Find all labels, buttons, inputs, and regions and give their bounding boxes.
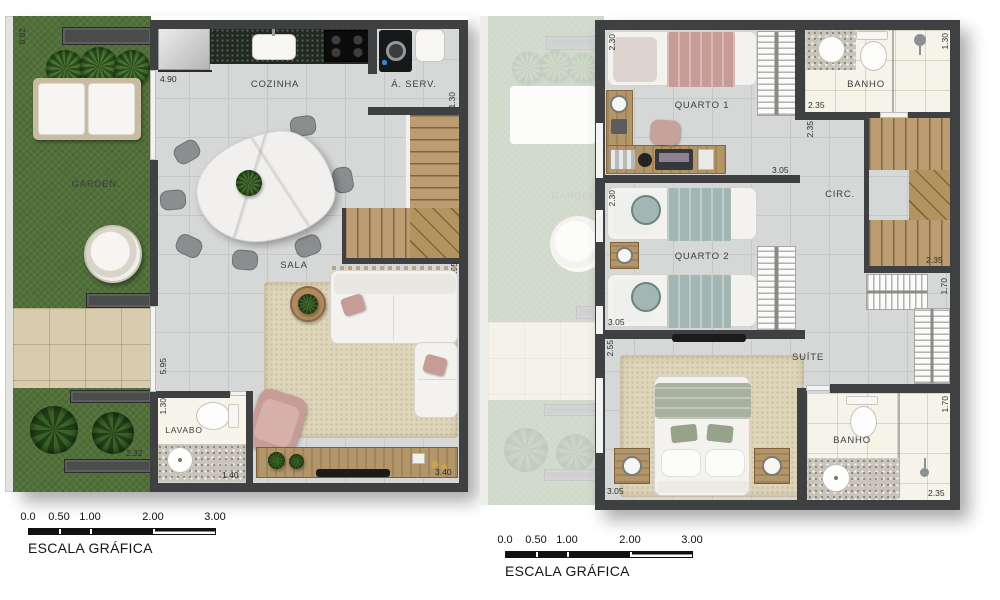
outdoor-sofa-cushion <box>88 83 135 135</box>
banho2-counter <box>807 458 899 500</box>
dim-banho2-width: 2.35 <box>928 489 945 498</box>
books-icon <box>610 149 636 170</box>
scale-bar <box>505 551 693 558</box>
stairs-side-wall <box>342 208 346 264</box>
scale-segment <box>632 552 692 557</box>
wall-left-segment <box>150 392 158 492</box>
dining-chair <box>231 249 259 271</box>
wall-bottom <box>150 483 468 492</box>
washer-drum <box>386 41 406 61</box>
dim-sala-width: 3.40 <box>435 468 452 477</box>
dim-sala-height-left: 5.95 <box>159 358 168 375</box>
scale-segment <box>506 552 536 557</box>
desk-decor <box>698 149 714 170</box>
toilet-icon <box>850 406 877 438</box>
wall-top <box>595 20 960 30</box>
scale-tick: 3.00 <box>200 511 230 523</box>
desk-chair <box>649 119 681 146</box>
closet-rack-top <box>866 274 928 310</box>
wall-right <box>950 20 960 510</box>
washer-light <box>382 60 387 65</box>
sideboard-plant-icon <box>289 454 304 469</box>
room-label-circ: CIRC. <box>815 190 865 200</box>
window <box>596 210 603 242</box>
dim-quarto1-height: 2.30 <box>608 34 617 51</box>
shower-stem <box>924 458 926 468</box>
stairs-flight <box>410 115 459 208</box>
garden-planter-lower <box>70 390 152 403</box>
sink-drain <box>178 458 182 462</box>
dim-garden-height: 8.82 <box>18 28 27 45</box>
sofa-cushion-seam <box>393 295 394 341</box>
scale-segment <box>155 529 215 534</box>
stairs2-winder <box>909 170 950 220</box>
stairs-bottom-wall <box>342 258 459 264</box>
scale-tick: 0.50 <box>521 534 551 546</box>
bed-blanket <box>667 188 731 241</box>
outdoor-sofa-cushion <box>38 83 85 135</box>
wall-below-quarto1 <box>595 175 800 183</box>
dim-quarto1-width: 3.05 <box>772 166 789 175</box>
dining-chair <box>159 189 187 211</box>
room-label-cozinha: COZINHA <box>244 80 306 90</box>
toilet-tank <box>856 31 888 40</box>
garden-nest-chair <box>84 225 142 283</box>
bush-plant-icon <box>30 406 78 454</box>
clock-icon <box>622 456 642 476</box>
sink-drain <box>834 476 838 480</box>
garden-door <box>150 70 156 160</box>
dim-garden-bottom: 2.32 <box>126 449 143 458</box>
scale-segment <box>538 552 567 557</box>
stairs2-flight-top <box>869 118 950 170</box>
ghost-garden: GARDEN. <box>488 16 604 505</box>
coffee-table-plant-icon <box>298 294 318 314</box>
garden-planter-top <box>62 27 152 45</box>
dim-suite-height: 2.55 <box>606 340 615 357</box>
bed-round-pillow <box>631 195 661 225</box>
scale-caption: ESCALA GRÁFICA <box>505 563 630 579</box>
cooktop-icon <box>324 30 370 62</box>
wardrobe-quarto2 <box>757 246 796 331</box>
bed-blanket <box>667 32 735 87</box>
wardrobe-quarto1 <box>757 31 796 116</box>
shower-head-icon <box>914 34 926 46</box>
window <box>596 306 603 334</box>
dim-banho2-height: 1.70 <box>941 396 950 413</box>
sideboard-decor <box>412 453 425 464</box>
toilet-tank <box>846 396 878 405</box>
room-label-quarto1: QUARTO 1 <box>660 101 744 111</box>
washing-machine-icon <box>379 30 412 72</box>
room-label-banho1: BANHO <box>836 80 896 90</box>
garden-planter-bottom <box>64 459 152 473</box>
window <box>596 378 603 453</box>
garden-planter-mid <box>86 293 152 308</box>
garden-patio <box>13 308 151 388</box>
dim-quarto2-height: 2.30 <box>608 190 617 207</box>
computer-screen <box>659 153 689 162</box>
banho2-wall-top <box>830 384 960 393</box>
lavabo-wall-right <box>246 391 253 485</box>
dim-lavabo-width: 1.40 <box>222 471 239 480</box>
tv-icon <box>672 334 746 342</box>
bed-blanket <box>655 383 751 419</box>
stairs-top-wall <box>368 107 459 115</box>
sink-icon <box>818 36 845 63</box>
scale-caption: ESCALA GRÁFICA <box>28 540 153 556</box>
scale-tick: 2.00 <box>138 511 168 523</box>
sofa-cushion-seam <box>418 379 456 380</box>
scale-tick: 0.0 <box>490 534 520 546</box>
scale-tick: 0.50 <box>44 511 74 523</box>
kitchen-counter <box>158 28 210 70</box>
scale-tick: 3.00 <box>677 534 707 546</box>
tv-icon <box>316 469 390 477</box>
table-plant-icon <box>236 170 262 196</box>
closet-rack-right <box>914 308 950 384</box>
desk-decor-box <box>611 119 627 134</box>
bed-headboard <box>657 481 749 493</box>
kitchen-sink <box>252 34 296 60</box>
bed-round-pillow <box>631 282 661 312</box>
service-divider-wall <box>368 28 377 74</box>
room-label-aserv: Á. SERV. <box>386 80 442 90</box>
stairs-flight <box>345 208 410 260</box>
stairs-winder <box>410 208 459 260</box>
dim-closet-height: 1.70 <box>940 278 949 295</box>
bed-pillow <box>661 449 701 477</box>
clock-icon <box>762 456 782 476</box>
desk-lamp-icon <box>638 153 652 167</box>
bed-pillow <box>705 449 745 477</box>
banho1-wall-left <box>795 20 805 120</box>
scale-segment <box>61 529 90 534</box>
bed-accent-pillow <box>706 424 734 444</box>
bed-blanket <box>667 275 731 328</box>
dim-circ-height: 2.35 <box>806 121 815 138</box>
clock-icon <box>610 95 628 113</box>
scale-bar <box>28 528 216 535</box>
scale-segment <box>569 552 630 557</box>
wall-below-stairs <box>864 266 960 273</box>
outdoor-sofa <box>33 78 141 140</box>
room-label-garden: GARDEN. <box>64 180 128 190</box>
floor-plans-canvas: GARDEN. 2.32 8.82 4.90 COZINHA Á. SERV. … <box>0 0 1000 600</box>
dim-suite-width: 3.05 <box>607 487 624 496</box>
banho2-door <box>806 385 830 391</box>
ghost-outer-wall <box>480 16 488 505</box>
wall-right <box>459 20 468 492</box>
scale-segment <box>29 529 59 534</box>
ghost-veil <box>488 16 604 505</box>
room-label-quarto2: QUARTO 2 <box>660 252 744 262</box>
dim-kitchen-width: 4.90 <box>160 75 177 84</box>
room-label-sala: SALA <box>272 261 316 271</box>
bed-pillow <box>613 37 657 82</box>
shower-glass <box>892 30 894 112</box>
room-label-banho2: BANHO <box>822 436 882 446</box>
banho2-wall-left <box>797 388 807 510</box>
bed-quarto2b <box>607 274 757 327</box>
clock-icon <box>616 247 633 264</box>
bed-suite <box>654 376 750 496</box>
scale-tick: 1.00 <box>552 534 582 546</box>
sideboard-plant-icon <box>268 452 285 469</box>
bed-quarto1 <box>607 31 757 86</box>
bed-quarto2a <box>607 187 757 240</box>
window <box>596 123 603 178</box>
dim-stairs-width: 2.35 <box>926 256 943 265</box>
armchair-cushion <box>252 397 301 449</box>
shower-stem <box>919 46 921 55</box>
wall-left-segment <box>150 20 158 70</box>
dim-banho1-width: 2.35 <box>808 101 825 110</box>
scale-tick: 0.0 <box>13 511 43 523</box>
dim-banho1-height: 1.30 <box>941 33 950 50</box>
room-label-lavabo: LAVABO <box>158 426 210 435</box>
laundry-sink <box>415 29 445 62</box>
wall-left-segment <box>150 160 158 306</box>
bed-accent-pillow <box>670 424 698 444</box>
scale-segment <box>92 529 153 534</box>
toilet-tank <box>228 404 239 428</box>
dim-quarto2-width: 3.05 <box>608 318 625 327</box>
wall-bottom <box>595 500 960 510</box>
computer-icon <box>655 149 693 170</box>
scale-tick: 2.00 <box>615 534 645 546</box>
sofa-back <box>334 274 456 294</box>
sala-sofa-chaise <box>414 342 458 418</box>
patio-sliding-door <box>150 306 156 392</box>
dim-lavabo-height: 1.30 <box>159 398 168 415</box>
dim-line <box>158 70 212 72</box>
toilet-icon <box>860 41 887 71</box>
wall-top <box>150 20 468 29</box>
room-label-suite: SUÍTE <box>785 353 831 363</box>
scale-tick: 1.00 <box>75 511 105 523</box>
shower-drain-icon <box>920 468 929 477</box>
